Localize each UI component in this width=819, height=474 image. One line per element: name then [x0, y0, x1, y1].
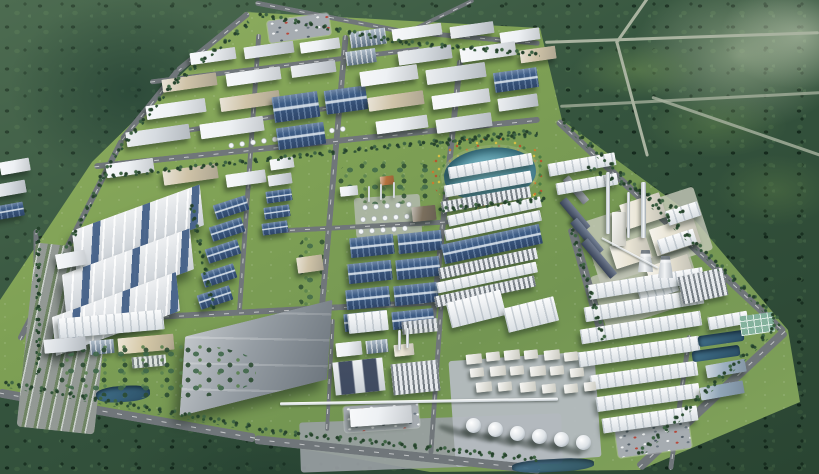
process-unit-18	[584, 381, 597, 391]
process-unit-3	[504, 349, 521, 361]
process-unit-15	[520, 381, 537, 393]
process-unit-1	[466, 353, 483, 365]
silo-5	[554, 432, 569, 447]
bldg-sc-2	[335, 341, 362, 358]
process-unit-12	[570, 367, 585, 377]
clearing-ne-3	[690, 140, 819, 240]
bldg-utility-white	[340, 185, 359, 197]
process-unit-6	[564, 351, 579, 361]
process-unit-13	[476, 381, 493, 393]
trees-west-road	[36, 225, 43, 375]
stack-2	[641, 182, 646, 238]
process-unit-2	[486, 351, 501, 361]
stack-sc-1	[398, 330, 401, 350]
silo-4	[532, 429, 547, 444]
industrial-park-aerial-render	[0, 0, 819, 474]
bldg-sc-3	[365, 339, 388, 354]
ribbed-sc	[391, 360, 441, 396]
stack-thin-1	[368, 186, 370, 202]
process-unit-7	[470, 367, 485, 377]
silo-6	[576, 435, 591, 450]
process-unit-16	[542, 383, 557, 393]
silo-2	[488, 422, 503, 437]
office-brown	[411, 205, 436, 222]
process-unit-17	[564, 383, 579, 393]
process-unit-14	[498, 381, 513, 391]
bldg-sc-4	[393, 343, 414, 357]
process-unit-5	[544, 349, 561, 361]
process-unit-10	[530, 365, 547, 377]
stack-1	[606, 172, 610, 234]
stack-3	[627, 192, 630, 238]
stack-thin-3	[393, 182, 395, 198]
hangar-sc	[332, 357, 385, 395]
silo-3	[510, 426, 525, 441]
process-unit-8	[490, 365, 507, 377]
lawn-sw-trees	[56, 344, 256, 398]
process-unit-9	[510, 365, 525, 375]
stack-thin-2	[380, 184, 382, 200]
bldg-sc-1	[347, 310, 389, 334]
silo-1	[466, 418, 481, 433]
process-unit-4	[524, 349, 539, 359]
stack-sc-2	[406, 328, 409, 348]
process-unit-11	[550, 365, 565, 375]
preheater-tower	[612, 212, 626, 246]
